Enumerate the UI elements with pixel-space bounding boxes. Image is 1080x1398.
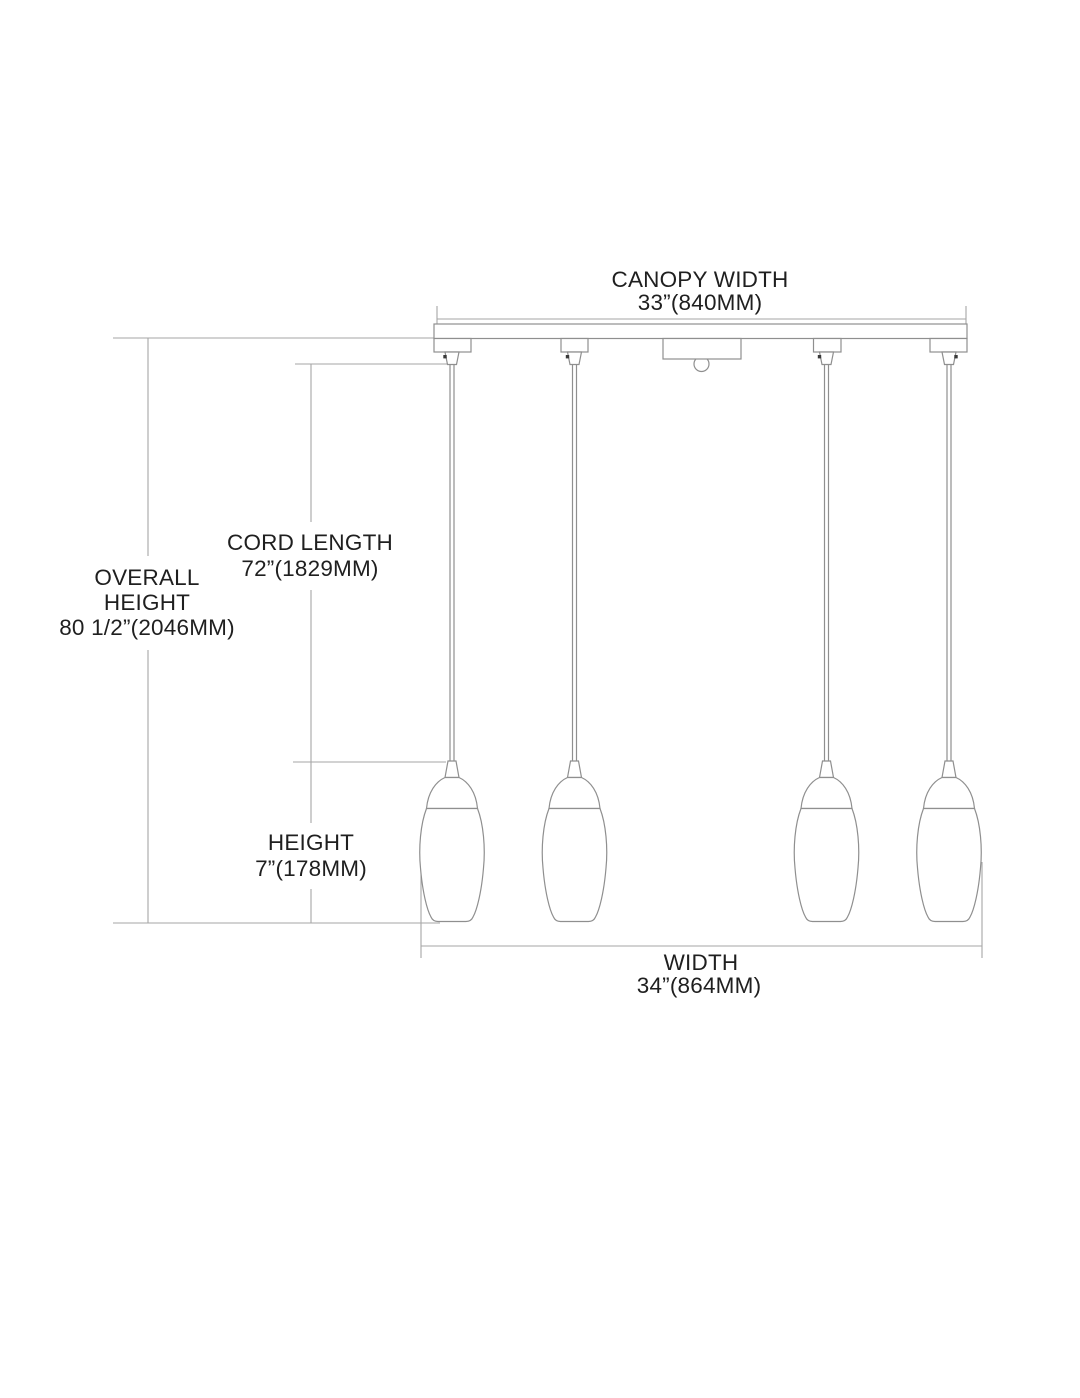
canopy-segment-cord3 [814, 339, 842, 353]
pendant-light-dimension-diagram: CANOPY WIDTH 33”(840MM) OVERALL HEIGHT 8… [0, 0, 1080, 1398]
canopy-segment-right [930, 339, 967, 353]
overall-height-label-line1: OVERALL [94, 565, 199, 590]
width-value: 34”(864MM) [637, 973, 762, 998]
overall-height-value: 80 1/2”(2046MM) [59, 615, 235, 640]
cord-length-value: 72”(1829MM) [241, 556, 378, 581]
canopy-width-label: CANOPY WIDTH [612, 267, 789, 292]
canopy-segment-cord2 [561, 339, 588, 353]
width-label: WIDTH [664, 950, 739, 975]
overall-height-label-line2: HEIGHT [104, 590, 190, 615]
diagram-background [0, 0, 1080, 1398]
canopy-center-box [663, 339, 741, 360]
canopy-bar [434, 324, 967, 339]
shade-height-value: 7”(178MM) [255, 856, 367, 881]
canopy-width-value: 33”(840MM) [638, 290, 763, 315]
canopy-segment-left [434, 339, 471, 353]
cord-length-label: CORD LENGTH [227, 530, 393, 555]
shade-height-label: HEIGHT [268, 830, 354, 855]
